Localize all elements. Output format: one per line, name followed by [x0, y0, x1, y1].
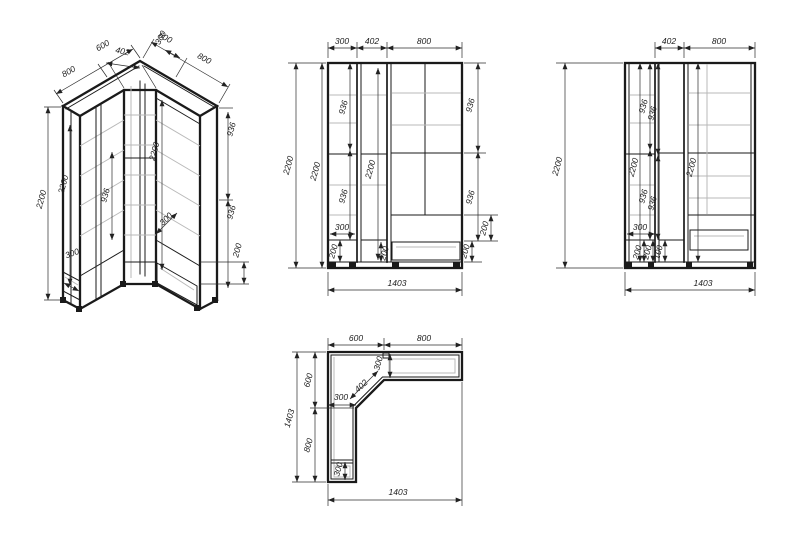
- dim-front-left-936-top: 936: [336, 99, 349, 116]
- plan-view: 600 800 1403 600 800 300 402 300 300 140…: [282, 333, 462, 506]
- dim-iso-col-936: 936: [98, 187, 111, 204]
- dim-iso-col-300: 300: [64, 246, 81, 260]
- dim-plan-wing-300: 300: [371, 355, 384, 372]
- dim-side-height: 2200: [550, 156, 565, 178]
- dim-front-top-402: 402: [365, 36, 379, 46]
- dim-iso-top-402: 402: [115, 45, 131, 58]
- dim-front-mid-2200: 2200: [363, 159, 378, 181]
- dim-iso-col-2200: 2200: [56, 174, 71, 196]
- dim-front-right-936-top: 936: [463, 97, 476, 114]
- dim-iso-right-936-bottom: 936: [224, 204, 237, 221]
- dim-plan-mid-300: 300: [334, 392, 348, 402]
- front-elevation-view: 300 402 800 2200 2200: [281, 36, 498, 296]
- dim-side-small-300: 300: [633, 222, 647, 232]
- dim-iso-height: 2200: [34, 189, 49, 211]
- dim-front-left-300: 300: [335, 222, 349, 232]
- dim-side-top-800: 800: [712, 36, 726, 46]
- dim-side-left-2200: 2200: [626, 157, 641, 179]
- dim-plan-top-800: 800: [417, 333, 431, 343]
- drawing-svg: 2200 600 800 600 800 402 300 2200 936 30…: [0, 0, 800, 533]
- dim-side-small-100: 100: [651, 244, 664, 261]
- dim-iso-top-800: 800: [196, 51, 213, 67]
- dim-iso-right-936-top: 936: [224, 121, 237, 138]
- dim-front-height-2: 2200: [308, 161, 323, 183]
- dim-iso-right-200: 200: [230, 242, 244, 260]
- dim-iso-side-800: 800: [60, 63, 78, 79]
- dim-plan-left-800: 800: [301, 437, 314, 454]
- dim-side-top-402: 402: [662, 36, 676, 46]
- isometric-view: 2200 600 800 600 800 402 300 2200 936 30…: [34, 29, 249, 312]
- technical-drawing-canvas: 2200 600 800 600 800 402 300 2200 936 30…: [0, 0, 800, 533]
- dim-front-width: 1403: [388, 278, 407, 288]
- dim-front-left-936-bottom: 936: [336, 188, 349, 205]
- dim-front-top-800: 800: [417, 36, 431, 46]
- dim-front-top-300: 300: [335, 36, 349, 46]
- dim-front-right-200-top: 200: [477, 220, 491, 238]
- dim-front-right-936-bottom: 936: [463, 189, 476, 206]
- dim-front-mid-200: 200: [377, 245, 391, 263]
- dim-side-width: 1403: [694, 278, 713, 288]
- dim-plan-top-600: 600: [349, 333, 363, 343]
- side-elevation-view: 402 800 2200: [550, 36, 755, 296]
- dim-plan-left-600: 600: [301, 372, 314, 389]
- dim-plan-left-1403: 1403: [282, 408, 297, 429]
- dim-side-right-2200: 2200: [684, 157, 699, 179]
- dim-iso-side-600: 600: [94, 37, 112, 53]
- dim-plan-width: 1403: [389, 487, 408, 497]
- dim-front-height: 2200: [281, 155, 296, 177]
